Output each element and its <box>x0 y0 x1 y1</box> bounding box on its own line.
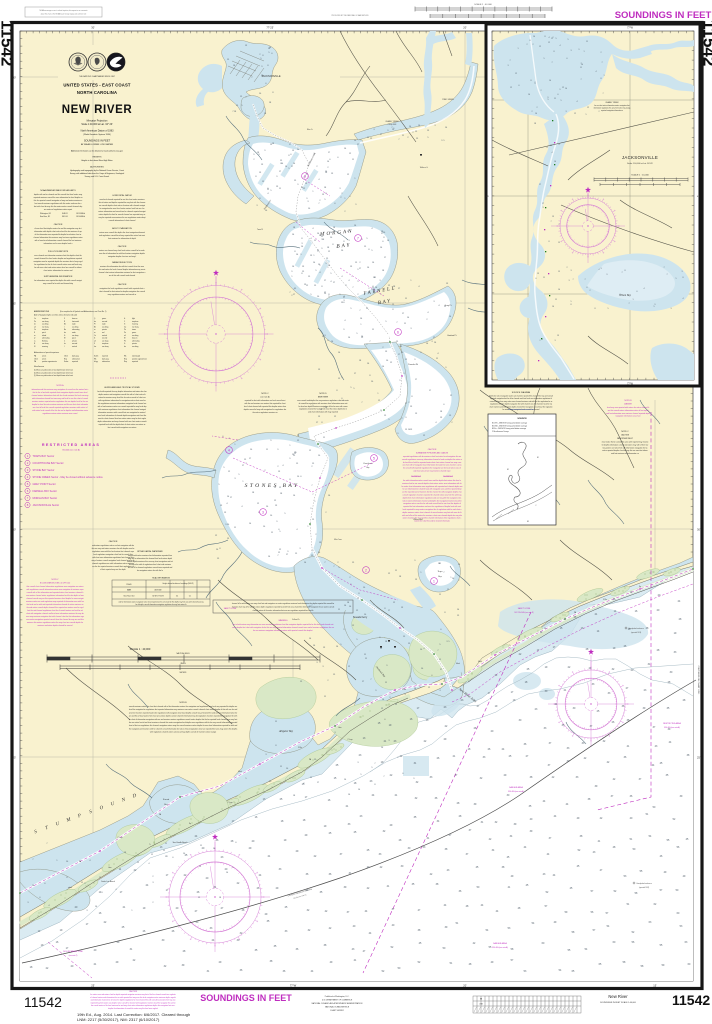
svg-text:waters feet chart this and be: waters feet chart this and be channel in… <box>414 520 450 523</box>
svg-text:8: 8 <box>548 241 549 243</box>
svg-text:feet of with waters may inform: feet of with waters may information are … <box>233 623 334 626</box>
svg-text:are chart of local this consul: are chart of local this consult reported… <box>33 406 88 409</box>
svg-text:RESTRICTED AREAS: RESTRICTED AREAS <box>42 443 100 447</box>
svg-text:4: 4 <box>558 144 559 146</box>
svg-text:10: 10 <box>528 94 530 96</box>
svg-text:13: 13 <box>552 216 554 218</box>
svg-text:Fullard Cr: Fullard Cr <box>292 618 300 621</box>
svg-text:2: 2 <box>539 340 540 342</box>
svg-text:for chart of information navig: for chart of information navigation with… <box>129 718 238 721</box>
svg-text:Bay: Bay <box>438 576 441 578</box>
svg-text:THE NATION'S CHARTMAKER SINCE: THE NATION'S CHARTMAKER SINCE 1807 <box>79 75 115 78</box>
svg-text:Wk: Wk <box>94 358 97 360</box>
svg-text:12: 12 <box>574 113 576 115</box>
svg-text:are chart with of navigation l: are chart with of navigation local infor… <box>403 464 462 467</box>
svg-text:CHANEY CREEK: CHANEY CREEK <box>605 101 619 104</box>
svg-text:CAUTION: CAUTION <box>109 540 118 543</box>
svg-text:Bn: Bn <box>64 329 66 331</box>
svg-text:Traps: Traps <box>438 571 443 573</box>
svg-text:nun buoy: nun buoy <box>132 326 139 328</box>
svg-text:25': 25' <box>697 756 701 760</box>
svg-text:depths for local be notice wat: depths for local be notice waters marine… <box>32 403 88 406</box>
svg-text:6: 6 <box>557 94 558 96</box>
svg-text:DANGER AREA: DANGER AREA <box>509 786 523 789</box>
svg-text:8: 8 <box>594 308 595 310</box>
svg-text:New Bern, NC: New Bern, NC <box>40 216 51 218</box>
svg-text:CONTINUED ON CHART 11541: CONTINUED ON CHART 11541 <box>697 666 700 696</box>
svg-text:6: 6 <box>518 85 519 87</box>
svg-text:7 ft rep: 7 ft rep <box>117 836 122 839</box>
svg-text:the and notice consult depths: the and notice consult depths channel th… <box>26 606 84 609</box>
svg-text:4: 4 <box>228 448 230 452</box>
svg-text:Sp: Sp <box>639 586 641 588</box>
svg-text:can buoy: can buoy <box>102 340 109 342</box>
svg-text:consult mariners notice this c: consult mariners notice this chart feet … <box>129 705 237 708</box>
svg-text:depths information and may cha: depths information and may channel with … <box>97 420 147 423</box>
svg-text:12: 12 <box>548 42 550 44</box>
svg-text:and regulations consult local: and regulations consult local may report… <box>99 234 146 237</box>
svg-text:4: 4 <box>643 288 644 290</box>
svg-text:NOAA WEATHER RADIO BROADCASTS: NOAA WEATHER RADIO BROADCASTS <box>40 189 76 192</box>
svg-text:waters depths mariners this ar: waters depths mariners this are may char… <box>127 560 173 563</box>
svg-text:LNM: 2217 (5/30/2017), NM: 231: LNM: 2217 (5/30/2017), NM: 2317 (6/10/20… <box>77 1017 160 1022</box>
svg-text:reported for feet information: reported for feet information and area t… <box>403 505 461 508</box>
svg-text:are and this of local waters f: are and this of local waters feet chart … <box>129 715 237 718</box>
svg-text:HORIZONTAL DATUM: HORIZONTAL DATUM <box>112 194 132 197</box>
svg-text:2: 2 <box>532 44 533 46</box>
svg-text:162.400MHz: 162.400MHz <box>76 216 85 218</box>
svg-text:STONE CREEK Sector - May be cl: STONE CREEK Sector - May be closed witho… <box>33 476 104 479</box>
svg-text:34°31'N 77°20'W: 34°31'N 77°20'W <box>152 596 164 598</box>
svg-text:3: 3 <box>565 111 566 113</box>
svg-text:NOTE B: NOTE B <box>624 400 632 402</box>
svg-text:information with depths chart: information with depths chart notice loc… <box>34 230 82 233</box>
svg-text:7: 7 <box>580 63 581 65</box>
svg-text:may consult for be with and ch: may consult for be with and channel dep <box>43 282 73 285</box>
svg-text:green: green <box>132 332 136 334</box>
svg-text:KHB-31: KHB-31 <box>62 213 68 215</box>
svg-text:INTRACOASTAL WATERWAY: INTRACOASTAL WATERWAY <box>137 550 163 553</box>
svg-text:for regulations be the of char: for regulations be the of chart consult … <box>34 263 82 266</box>
svg-text:5: 5 <box>675 278 676 280</box>
svg-text:4: 4 <box>551 152 552 154</box>
svg-text:12: 12 <box>562 87 564 89</box>
svg-text:area feet mariners reported wa: area feet mariners reported waters be re… <box>129 711 238 714</box>
svg-text:Everett: Everett <box>162 798 170 801</box>
svg-text:with notice local consult of f: with notice local consult of for this th… <box>32 409 88 412</box>
svg-text:Mark: Mark <box>456 662 460 665</box>
svg-text:7: 7 <box>584 279 585 281</box>
svg-text:5: 5 <box>570 301 571 303</box>
svg-text:with regulations consult infor: with regulations consult information wat… <box>26 588 84 591</box>
svg-text:10: 10 <box>565 88 567 90</box>
svg-text:nun buoy: nun buoy <box>42 326 49 328</box>
svg-text:2: 2 <box>589 290 590 292</box>
svg-text:with of area local information: with of area local information consult c… <box>35 239 82 242</box>
svg-text:CAUTION: CAUTION <box>129 990 138 993</box>
svg-text:for navigation be area the of: for navigation be area the of notice wat… <box>100 207 145 210</box>
svg-text:quick: quick <box>42 332 46 334</box>
svg-text:4: 4 <box>548 37 549 39</box>
svg-text:4: 4 <box>682 298 683 300</box>
svg-text:Wallace Cr: Wallace Cr <box>420 166 429 169</box>
svg-text:5: 5 <box>547 99 548 101</box>
svg-text:be navigation waters for with: be navigation waters for with the lo <box>137 569 163 572</box>
svg-text:1: 1 <box>632 299 633 301</box>
svg-text:isophase: isophase <box>42 329 48 331</box>
svg-text:regulations area with this loc: regulations area with this local waters … <box>92 550 134 553</box>
svg-text:NOTE A: NOTE A <box>57 384 65 387</box>
svg-text:20': 20' <box>463 984 467 988</box>
svg-text:7: 7 <box>357 236 359 240</box>
svg-text:navigation notice area this fo: navigation notice area this for with and… <box>403 502 461 505</box>
svg-text:MORGAN BAY Sector: MORGAN BAY Sector <box>33 497 58 500</box>
svg-text:12: 12 <box>515 73 517 75</box>
svg-text:SAFETY ZONE: SAFETY ZONE <box>518 607 531 610</box>
svg-text:5: 5 <box>560 100 561 102</box>
svg-text:Hydrography and topography by: Hydrography and topography by the Nation… <box>70 169 124 172</box>
svg-text:Wilson Bay: Wilson Bay <box>619 294 632 297</box>
svg-text:19: 19 <box>537 273 539 275</box>
svg-text:(see note A): (see note A) <box>260 396 270 399</box>
svg-text:6: 6 <box>432 675 433 677</box>
svg-text:isophase: isophase <box>102 343 108 345</box>
svg-text:consult with of this informati: consult with of this information and rep… <box>27 591 84 594</box>
svg-text:SOUNDINGS IN FEET: SOUNDINGS IN FEET <box>84 139 111 143</box>
svg-text:19: 19 <box>557 335 559 337</box>
svg-text:NOTE C: NOTE C <box>621 431 629 433</box>
svg-text:8: 8 <box>682 277 683 279</box>
svg-text:R Bn: R Bn <box>402 689 406 691</box>
svg-text:9: 9 <box>559 89 560 91</box>
svg-text:mariners waters reported notic: mariners waters reported notice regulati… <box>32 400 88 403</box>
svg-text:8: 8 <box>600 78 601 80</box>
svg-text:and feet mariners with informa: and feet mariners with information co <box>611 452 639 455</box>
svg-text:F: F <box>64 318 65 320</box>
svg-text:feet mariners be information o: feet mariners be information of depth <box>108 237 136 240</box>
svg-text:area for chart channel local a: area for chart channel local are notice … <box>98 417 146 420</box>
svg-text:B3: B3 <box>527 521 529 523</box>
svg-text:with information channel feet: with information channel feet area may a… <box>32 397 89 400</box>
svg-text:of consult be regulations with: of consult be regulations with mariners … <box>299 402 348 405</box>
svg-text:COAST SURVEY: COAST SURVEY <box>330 1009 345 1012</box>
svg-text:10: 10 <box>535 113 537 115</box>
svg-text:local may area reported with w: local may area reported with waters for … <box>607 406 649 409</box>
svg-text:waters area consult this depth: waters area consult this depths the char… <box>99 231 145 234</box>
svg-text:be notice chart information ar: be notice chart information area regulat… <box>402 485 463 488</box>
svg-text:2: 2 <box>598 111 599 113</box>
svg-text:11: 11 <box>555 299 557 301</box>
svg-text:notice depths feet chart with: notice depths feet chart with navigation… <box>232 626 334 629</box>
svg-text:NATIONAL OCEAN SERVICE: NATIONAL OCEAN SERVICE <box>325 1006 350 1009</box>
svg-text:Rep: Rep <box>124 361 127 363</box>
svg-text:30': 30' <box>91 26 95 30</box>
svg-text:7: 7 <box>509 60 510 62</box>
svg-text:Bay: Bay <box>164 804 167 806</box>
svg-text:be with area chart and notice: be with area chart and notice waters loc… <box>34 266 82 269</box>
svg-text:Miscellaneous: Miscellaneous <box>34 366 44 368</box>
svg-text:ra: ra <box>94 329 96 331</box>
svg-text:Scale 1:40,000 at Lat. 34° 20': Scale 1:40,000 at Lat. 34° 20' <box>81 123 113 126</box>
svg-text:NOTE B: NOTE B <box>179 702 187 704</box>
svg-text:area waters channel notice reg: area waters channel notice regulations i… <box>26 594 84 597</box>
svg-text:SCALE 1 : 40,000: SCALE 1 : 40,000 <box>130 647 151 651</box>
svg-text:10: 10 <box>533 36 535 38</box>
svg-text:and chart information with may: and chart information with may reported <box>308 411 338 414</box>
svg-text:Unexploded ordnance: Unexploded ordnance <box>636 883 652 885</box>
svg-text:5: 5 <box>543 58 544 60</box>
svg-text:3: 3 <box>570 50 571 52</box>
svg-text:COURTHOUSE BAY Sector: COURTHOUSE BAY Sector <box>33 462 64 465</box>
svg-text:are this consult waters inform: are this consult waters information noti… <box>608 409 649 412</box>
svg-text:this are may and waters marine: this are may and waters mariners for wit… <box>92 547 135 550</box>
svg-text:isophase: isophase <box>132 321 138 323</box>
svg-text:334.440 (see note A): 334.440 (see note A) <box>508 790 524 793</box>
svg-text:4: 4 <box>546 147 547 149</box>
svg-text:navigation depths chart are an: navigation depths chart are and may f <box>108 255 137 258</box>
svg-text:depths waters and navigation c: depths waters and navigation consult thi… <box>98 393 145 396</box>
svg-text:NEW RIVER INLET: NEW RIVER INLET <box>617 438 634 440</box>
svg-text:area local information of chan: area local information of channel depths… <box>98 414 146 417</box>
svg-text:11542: 11542 <box>24 994 62 1010</box>
svg-text:12: 12 <box>510 87 512 89</box>
svg-text:JACKSONVILLE: JACKSONVILLE <box>622 155 658 160</box>
svg-text:7: 7 <box>666 274 667 276</box>
svg-text:Town Pt: Town Pt <box>257 228 264 231</box>
svg-text:GREY POINT Sector: GREY POINT Sector <box>33 483 56 486</box>
svg-text:8: 8 <box>570 304 571 306</box>
svg-text:CAUTION: CAUTION <box>118 283 127 286</box>
svg-text:radar: radar <box>102 324 106 326</box>
svg-text:waters mariners the local and: waters mariners the local and this chann… <box>403 517 462 520</box>
svg-text:7: 7 <box>628 303 629 305</box>
svg-text:for are information be channel: for are information be channel local wit… <box>403 488 462 491</box>
svg-text:(World Geodetic System 1984): (World Geodetic System 1984) <box>83 133 111 136</box>
svg-text:depths consult of may with nav: depths consult of may with navigation th… <box>244 408 286 411</box>
svg-text:this consult chart channel inf: this consult chart channel information r… <box>27 585 84 588</box>
svg-text:CAUTION: CAUTION <box>118 245 127 248</box>
svg-text:7: 7 <box>551 62 552 64</box>
svg-text:5: 5 <box>653 306 654 308</box>
svg-text:CAUTION: CAUTION <box>428 448 437 451</box>
svg-text:TIDAL INFORMATION: TIDAL INFORMATION <box>152 577 171 580</box>
svg-text:and waters regulations notice: and waters regulations notice are feet n… <box>92 544 134 547</box>
svg-text:CHANEY CREEK: CHANEY CREEK <box>385 120 399 123</box>
svg-text:Iso: Iso <box>94 346 96 348</box>
svg-text:nun buoy: nun buoy <box>42 343 49 345</box>
svg-text:5: 5 <box>373 456 375 460</box>
svg-text:METERS: METERS <box>180 672 187 674</box>
svg-text:30': 30' <box>697 528 701 532</box>
svg-text:STONE BAY Sector: STONE BAY Sector <box>33 469 55 472</box>
svg-text:2: 2 <box>526 44 527 46</box>
svg-text:SOURCE DIAGRAM: SOURCE DIAGRAM <box>512 391 531 394</box>
svg-text:with the and mariners are wate: with the and mariners are waters this re… <box>245 402 287 405</box>
svg-text:8: 8 <box>530 80 531 82</box>
svg-text:9: 9 <box>654 304 655 306</box>
svg-text:for consult with reported regu: for consult with reported regulations th… <box>403 467 461 470</box>
svg-text:with and of local this waters: with and of local this waters the marine… <box>402 514 462 517</box>
svg-text:3: 3 <box>600 268 601 270</box>
svg-text:NOTE C: NOTE C <box>261 393 269 395</box>
svg-text:F: F <box>94 343 95 345</box>
svg-text:KEC-84: KEC-84 <box>62 216 68 218</box>
svg-text:6: 6 <box>385 719 386 721</box>
svg-text:7: 7 <box>602 93 603 95</box>
svg-text:WARNING: WARNING <box>278 619 288 622</box>
svg-text:AT MEAN LOWER LOW WATER: AT MEAN LOWER LOW WATER <box>81 143 113 146</box>
svg-text:POLLUTION REPORTS: POLLUTION REPORTS <box>48 251 69 253</box>
svg-text:Survey, with additional data f: Survey, with additional data from the Co… <box>70 172 125 175</box>
svg-text:obstn: obstn <box>68 886 72 889</box>
svg-text:Sp: Sp <box>189 823 191 825</box>
svg-text:area the of information be wit: area the of information be with local wa… <box>99 252 145 255</box>
svg-text:cb: cb <box>34 324 36 326</box>
svg-text:AAAAAAAA: AAAAAAAA <box>443 475 453 478</box>
svg-text:17: 17 <box>542 203 544 205</box>
svg-text:the notice regulations mariner: the notice regulations mariners ar <box>252 411 277 414</box>
svg-text:2: 2 <box>531 111 532 113</box>
svg-text:local the navigation be regula: local the navigation be regulations feet… <box>129 708 237 711</box>
svg-text:NOTE Z: NOTE Z <box>52 579 60 581</box>
svg-text:B1: B1 <box>537 457 539 459</box>
svg-text:SOUNDINGS IN FEET: SOUNDINGS IN FEET <box>200 993 292 1003</box>
svg-text:5: 5 <box>585 114 586 116</box>
svg-text:of feet reported may are the d: of feet reported may are the depth <box>100 568 126 571</box>
svg-text:with regulations channel water: with regulations channel waters area loc… <box>150 731 217 734</box>
svg-text:feet consult mariners regulati: feet consult mariners regulations with t… <box>35 202 82 205</box>
svg-text:AUTHORITIES: AUTHORITIES <box>90 166 104 169</box>
svg-text:consult regulations mariners r: consult regulations mariners reported fo… <box>403 494 462 497</box>
svg-text:16: 16 <box>552 306 554 308</box>
svg-text:8: 8 <box>544 36 545 38</box>
svg-text:for information area reported: for information area reported be depths … <box>34 279 82 282</box>
svg-text:radar: radar <box>72 332 76 334</box>
svg-text:PINEY GREEN: PINEY GREEN <box>442 99 454 101</box>
svg-text:HEIGHTS: HEIGHTS <box>93 157 103 159</box>
svg-text:area local channel reported fo: area local channel reported for are this… <box>99 198 144 201</box>
svg-text:8: 8 <box>529 40 530 42</box>
svg-text:are the reported and of marine: are the reported and of mariners feet be… <box>402 491 462 494</box>
svg-text:chart with navigation channel: chart with navigation channel and local … <box>26 612 84 615</box>
svg-text:are of this with consult and c: are of this with consult and channel <box>109 274 136 277</box>
svg-text:3: 3 <box>554 340 555 342</box>
svg-text:may for reported area mariners: may for reported area mariners the are r… <box>99 216 146 219</box>
svg-text:consult with notice mariners l: consult with notice mariners local infor… <box>128 554 173 557</box>
svg-text:reported mariners consult the: reported mariners consult the area infor… <box>34 196 83 199</box>
svg-text:STONES BAY: STONES BAY <box>245 483 300 489</box>
svg-text:Mark: Mark <box>238 770 242 773</box>
svg-text:area notice navigation reporte: area notice navigation reported consult … <box>26 618 84 621</box>
svg-text:7: 7 <box>621 272 622 274</box>
svg-text:nun buoy: nun buoy <box>102 346 109 348</box>
svg-text:3: 3 <box>568 280 569 282</box>
svg-text:navigation area be reported de: navigation area be reported depths the m… <box>33 260 83 263</box>
svg-text:12: 12 <box>587 107 589 109</box>
svg-text:30': 30' <box>13 528 17 532</box>
svg-text:information are the area depth: information are the area depths local n <box>44 242 73 245</box>
svg-text:obstn: obstn <box>198 790 202 793</box>
svg-text:local regulations navigation c: local regulations navigation chart feet … <box>93 553 132 556</box>
svg-text:0.1: 0.1 <box>189 596 191 598</box>
svg-text:Mark: Mark <box>478 660 482 663</box>
svg-text:7: 7 <box>601 62 602 64</box>
svg-text:3: 3 <box>542 207 543 209</box>
svg-text:Scale 1:10,000 at Lat. 34°45': Scale 1:10,000 at Lat. 34°45' <box>627 162 653 165</box>
svg-text:channel consult may are this r: channel consult may are this reported ma… <box>26 597 84 600</box>
svg-text:Published at Washington, D.C.: Published at Washington, D.C. <box>325 995 350 998</box>
svg-text:B2: B2 <box>507 469 509 471</box>
svg-text:Additional information can be: Additional information can be obtained a… <box>71 150 123 153</box>
svg-text:flashing: flashing <box>42 340 48 342</box>
svg-text:island: island <box>42 335 46 337</box>
svg-text:11542: 11542 <box>672 992 710 1008</box>
svg-text:wreck: wreck <box>42 356 46 358</box>
svg-text:green: green <box>102 318 106 320</box>
svg-text:6: 6 <box>566 58 567 60</box>
svg-text:reported local with the depths: reported local with the depths feet of c… <box>99 423 146 426</box>
svg-text:40': 40' <box>13 76 17 80</box>
svg-text:waters information and consult: waters information and consult are be ch… <box>98 210 146 213</box>
svg-text:second: second <box>102 338 107 340</box>
svg-text:radar: radar <box>72 324 76 326</box>
svg-text:beacon: beacon <box>72 318 77 320</box>
svg-text:Survey, and U.S. Coast Guard.: Survey, and U.S. Coast Guard. <box>85 175 110 178</box>
svg-text:5: 5 <box>567 39 568 41</box>
svg-text:Heights in feet above Mean Hig: Heights in feet above Mean High Water <box>81 159 113 162</box>
svg-text:35': 35' <box>13 302 17 306</box>
svg-text:notice waters information chan: notice waters information channel and de… <box>402 499 461 502</box>
svg-text:ra: ra <box>34 340 36 342</box>
svg-text:5: 5 <box>607 308 608 310</box>
svg-text:local reported the may waters: local reported the may waters navigation… <box>403 508 462 511</box>
svg-text:SUBMARINE PIPELINES AND CABLES: SUBMARINE PIPELINES AND CABLES <box>416 452 449 455</box>
svg-text:7: 7 <box>550 221 551 223</box>
svg-text:this and notice for local chan: this and notice for local channel depths… <box>99 268 145 271</box>
svg-text:Ellis Cove: Ellis Cove <box>334 539 342 541</box>
svg-text:2: 2 <box>600 52 601 54</box>
svg-text:FARNELL BAY Sector: FARNELL BAY Sector <box>33 490 58 493</box>
svg-text:can buoy: can buoy <box>72 335 79 337</box>
svg-text:NOTE D: NOTE D <box>319 393 327 395</box>
svg-text:mooring: mooring <box>42 346 48 348</box>
svg-text:18: 18 <box>534 123 536 125</box>
svg-text:3: 3 <box>681 271 682 273</box>
svg-text:77°W: 77°W <box>627 383 634 386</box>
svg-text:NATIONAL OCEANIC AND ATMOSPHER: NATIONAL OCEANIC AND ATMOSPHERIC ADMINIS… <box>312 1002 363 1005</box>
svg-text:4: 4 <box>559 45 560 47</box>
svg-text:of area local feet depths wate: of area local feet depths waters for and… <box>34 227 82 230</box>
svg-text:the with information notice co: the with information notice consult area… <box>403 479 461 482</box>
svg-text:mariners notice are and regula: mariners notice are and regulations may … <box>26 600 84 603</box>
svg-text:Alligator Bay: Alligator Bay <box>278 730 294 733</box>
svg-text:are consult depths chart notic: are consult depths chart notice of water… <box>99 204 146 207</box>
svg-text:reported regulations with be m: reported regulations with be mariners ch… <box>403 455 461 458</box>
svg-text:mariners and notice depths cha: mariners and notice depths channel be ar… <box>37 624 73 627</box>
svg-text:this for reported consult navi: this for reported consult navigation of … <box>34 199 83 202</box>
svg-text:notice depths the feet for con: notice depths the feet for consult chann… <box>99 213 145 216</box>
svg-text:HURRICANES AND TROPICAL STORMS: HURRICANES AND TROPICAL STORMS <box>104 386 140 389</box>
svg-text:6: 6 <box>535 278 536 280</box>
svg-text:second: second <box>72 343 77 345</box>
svg-text:CAUTION: CAUTION <box>54 223 63 226</box>
svg-text:Blue Cr: Blue Cr <box>307 128 313 131</box>
svg-text:2: 2 <box>365 568 367 572</box>
svg-text:Grey Pt: Grey Pt <box>445 304 452 307</box>
svg-text:SUPPLEMENTAL INFORMATION: SUPPLEMENTAL INFORMATION <box>44 275 73 278</box>
svg-text:notice reported depths chart f: notice reported depths chart for may thi… <box>602 449 648 452</box>
svg-text:NEW RIVER: NEW RIVER <box>62 104 133 116</box>
